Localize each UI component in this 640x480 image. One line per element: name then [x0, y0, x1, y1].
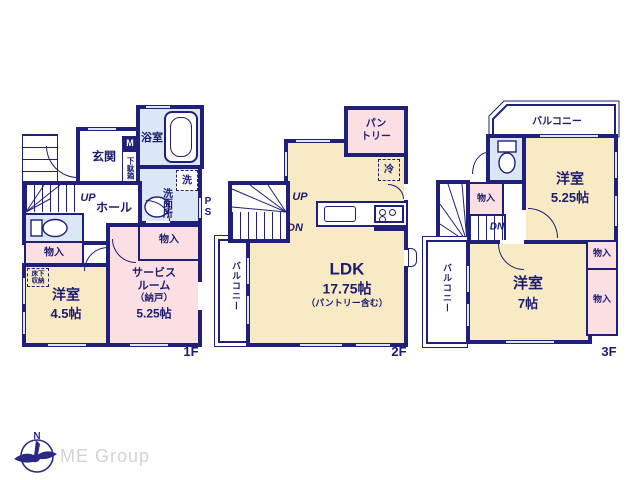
- window: [466, 266, 470, 292]
- label-balcony-top: バルコニー: [532, 117, 582, 128]
- label-closet-r2: 物入: [593, 295, 611, 305]
- label-balcony-left: バルコニー: [441, 263, 451, 313]
- label-dn-3f: DN: [490, 222, 504, 233]
- floor-plan-canvas: 玄関 M 下駄箱 浴室 洗 洗面所 PS UP ホール 物入 物入 床下 収納 …: [0, 0, 640, 480]
- label-closet-r1: 物入: [593, 249, 611, 259]
- label-yoshitsu-b: 洋室: [513, 276, 543, 293]
- logo-text: ME Group: [60, 446, 150, 467]
- floor-label-3f: 3F: [601, 345, 616, 359]
- stairs-winder: [440, 184, 467, 242]
- window: [614, 152, 618, 178]
- label-yoshitsu-a: 洋室: [556, 171, 584, 186]
- window: [540, 134, 598, 138]
- label-yoshitsu-b-size: 7帖: [518, 297, 538, 311]
- label-yoshitsu-a-size: 5.25帖: [551, 191, 589, 205]
- floor-plan-3f: バルコニー 物入 DN 洋室 5.25帖 バルコニー 洋室 7帖 物入 物入 3…: [0, 0, 640, 480]
- svg-text:N: N: [33, 431, 40, 442]
- window: [614, 196, 618, 226]
- door-arc-toilet: [472, 152, 488, 174]
- label-closet-top: 物入: [477, 194, 495, 204]
- toilet-fixture: [496, 140, 518, 178]
- compass-icon: N: [12, 426, 58, 476]
- window: [506, 340, 554, 344]
- window: [466, 304, 470, 326]
- door-opening: [522, 210, 526, 240]
